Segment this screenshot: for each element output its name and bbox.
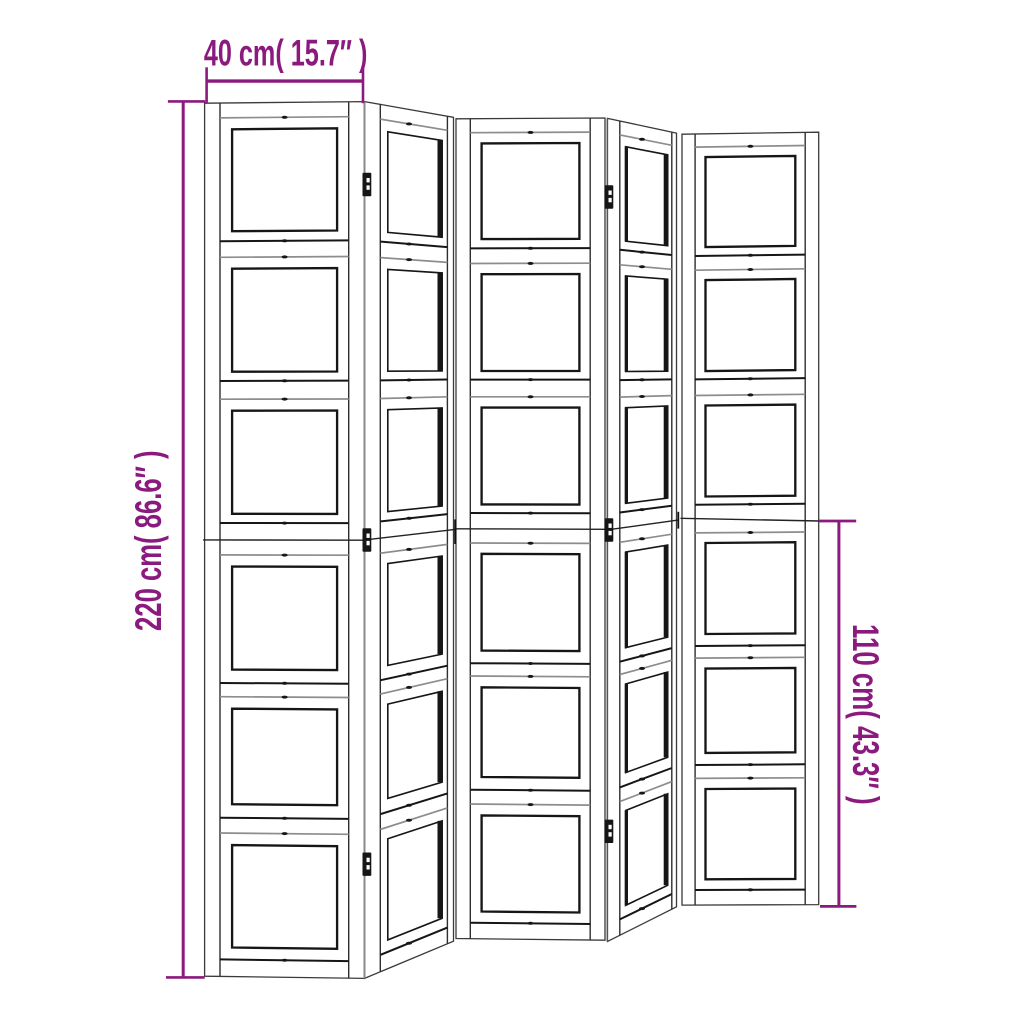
svg-text:110 cm( 43.3″ ): 110 cm( 43.3″ ): [845, 624, 886, 805]
svg-text:220 cm( 86.6″ ): 220 cm( 86.6″ ): [128, 450, 169, 631]
svg-text:40 cm( 15.7″ ): 40 cm( 15.7″ ): [204, 32, 368, 73]
